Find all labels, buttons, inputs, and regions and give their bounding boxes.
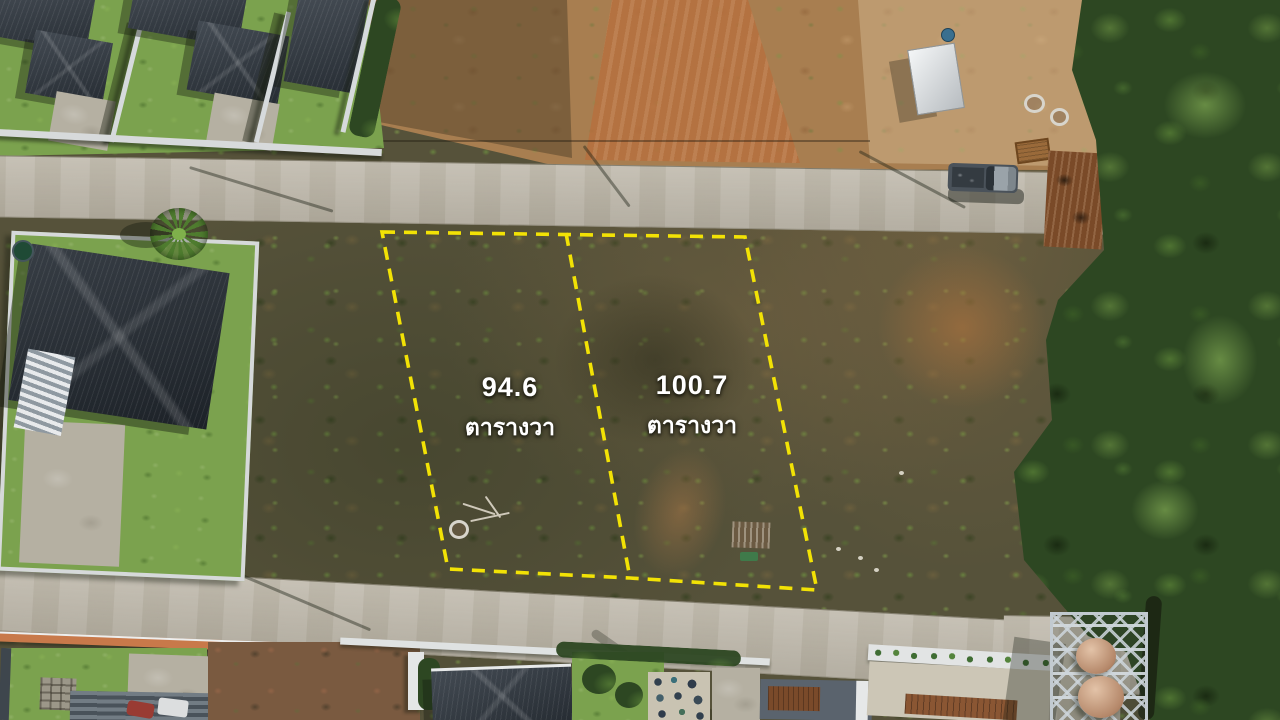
debris-speck bbox=[874, 568, 879, 572]
aerial-photo-scene: 94.6 ตารางวา 100.7 ตารางวา bbox=[0, 0, 1280, 720]
orange-dirt-patch bbox=[845, 215, 1080, 440]
garden-tree bbox=[615, 682, 643, 708]
concrete-ring bbox=[1050, 108, 1069, 126]
left-plot-area-value: 94.6 bbox=[450, 366, 570, 409]
debris-speck bbox=[858, 556, 863, 560]
walled-yard bbox=[0, 231, 259, 581]
water-tank bbox=[12, 240, 34, 262]
concrete-ring bbox=[1024, 94, 1045, 113]
water-tank bbox=[1076, 638, 1116, 674]
tree-highlight bbox=[1170, 300, 1270, 420]
right-plot-area-value: 100.7 bbox=[632, 364, 752, 407]
potted-plant-terrace bbox=[648, 672, 710, 720]
debris-speck bbox=[899, 471, 904, 475]
truck-bed bbox=[952, 167, 985, 188]
truck-cab bbox=[986, 166, 1017, 191]
left-plot-area-unit: ตารางวา bbox=[450, 409, 570, 446]
right-plot-label: 100.7 ตารางวา bbox=[632, 364, 752, 444]
palm-crown bbox=[172, 228, 186, 240]
concrete-path bbox=[712, 668, 760, 720]
blue-barrel bbox=[941, 28, 955, 42]
debris-speck bbox=[836, 547, 841, 551]
flat-roof-house bbox=[760, 679, 873, 720]
right-plot-area-unit: ตารางวา bbox=[632, 407, 752, 444]
white-van bbox=[157, 697, 189, 718]
rusty-roof-shack bbox=[1044, 151, 1107, 250]
powerline-shadow bbox=[368, 140, 870, 142]
driveway bbox=[19, 421, 125, 567]
reddish-scrub-plot bbox=[208, 642, 420, 720]
pickup-truck bbox=[948, 163, 1019, 193]
water-tank bbox=[1078, 676, 1124, 718]
canopy-tent bbox=[907, 43, 965, 116]
wooden-crate bbox=[1015, 138, 1052, 165]
left-plot-label: 94.6 ตารางวา bbox=[450, 366, 570, 446]
concrete-ring bbox=[449, 520, 469, 539]
tree-highlight bbox=[1120, 470, 1210, 550]
tree-highlight bbox=[1150, 60, 1260, 150]
wood-deck bbox=[768, 686, 820, 711]
small-shelter bbox=[732, 521, 771, 548]
green-tarp bbox=[740, 552, 758, 561]
garden-tree bbox=[582, 664, 616, 694]
house-roof bbox=[431, 664, 573, 720]
